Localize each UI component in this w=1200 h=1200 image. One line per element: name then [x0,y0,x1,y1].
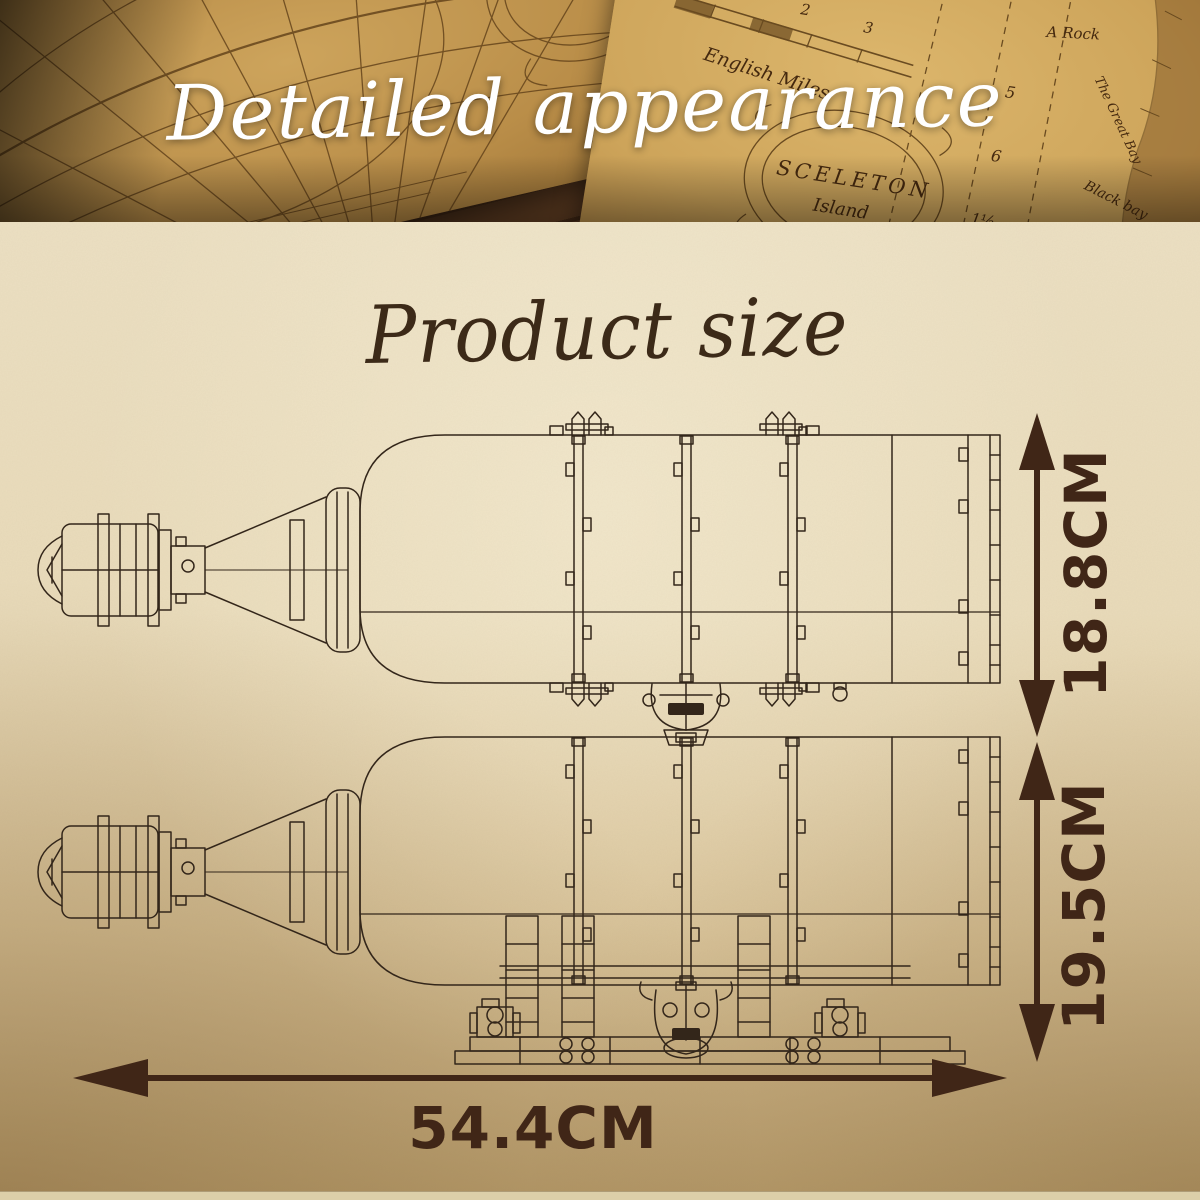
page-bottom-strip [0,1191,1200,1200]
dimension-label-length: 54.4CM [408,1094,657,1162]
dimension-label-bottle-height: 18.8CM [1052,448,1120,697]
banner-title: Detailed appearance [166,54,1005,158]
product-size-infographic: Minium [0,0,1200,1200]
section-title: Product size [365,280,849,382]
technical-drawings [0,0,1200,1200]
dimension-label-total-height: 19.5CM [1050,781,1118,1030]
